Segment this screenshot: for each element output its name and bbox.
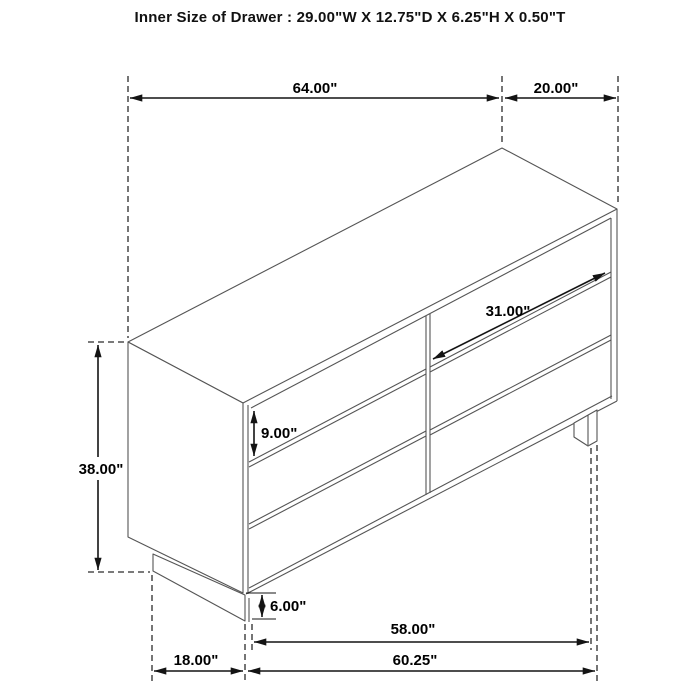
dim-label-bottom-overall-width: 60.25" [393,652,438,669]
dresser-drawing [128,148,617,622]
dresser-right-leg [574,410,597,446]
dresser-dimension-drawing: 64.00" 20.00" 31.00" 9.00" 38.00" 6.00" … [0,0,700,700]
dim-label-overall-height: 38.00" [79,461,124,478]
left-col-sep1-lower [249,374,426,467]
dim-label-top-width: 64.00" [293,80,338,97]
left-col-sep2-lower [249,436,426,529]
dim-label-bottom-inner-width: 58.00" [391,621,436,638]
dim-label-base-height: 6.00" [270,598,306,615]
dimension-diagram-page: Inner Size of Drawer : 29.00"W X 12.75"D… [0,0,700,700]
dim-label-drawer-width: 31.00" [486,303,531,320]
dim-label-bottom-side-depth: 18.00" [174,652,219,669]
dim-label-top-depth: 20.00" [534,80,579,97]
right-leg-outline [574,410,597,446]
right-col-sep2-upper [430,335,611,430]
dim-label-drawer-height: 9.00" [261,425,297,442]
left-col-sep2-upper [249,431,426,524]
bottom-outer-edge [246,401,617,594]
dresser-top-face [128,148,617,403]
